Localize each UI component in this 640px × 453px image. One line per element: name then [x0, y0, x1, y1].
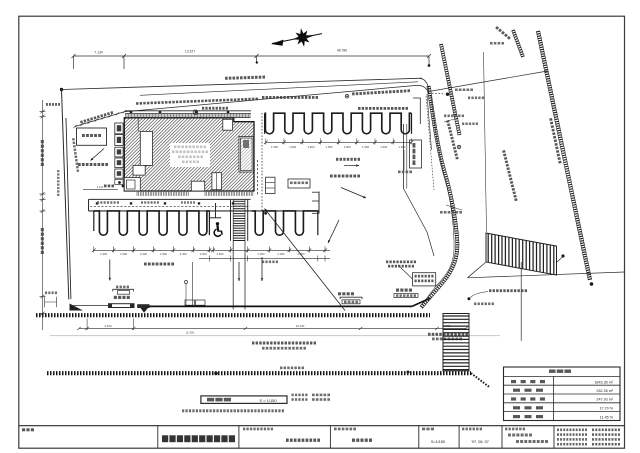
svg-text:22.130: 22.130	[296, 324, 305, 328]
svg-text:2.300: 2.300	[140, 252, 147, 256]
svg-text:7.134: 7.134	[94, 51, 103, 55]
svg-text:1.900: 1.900	[362, 145, 369, 149]
svg-text:1.900: 1.900	[326, 145, 333, 149]
svg-text:46.780: 46.780	[337, 49, 347, 53]
svg-text:247.93 m²: 247.93 m²	[596, 398, 613, 402]
svg-text:2.300: 2.300	[120, 252, 127, 256]
svg-text:1.900: 1.900	[344, 145, 351, 149]
svg-text:1.110: 1.110	[97, 185, 104, 189]
svg-text:11.45 %: 11.45 %	[600, 415, 614, 419]
svg-text:262.26 m²: 262.26 m²	[596, 389, 613, 393]
svg-text:1.900: 1.900	[380, 145, 387, 149]
svg-text:2.300: 2.300	[100, 252, 107, 256]
svg-text:1.900: 1.900	[289, 145, 296, 149]
svg-text:3.500: 3.500	[217, 252, 224, 256]
svg-text:1843.36 m²: 1843.36 m²	[594, 380, 613, 384]
svg-text:2.300: 2.300	[258, 252, 265, 256]
svg-text:17.70 %: 17.70 %	[599, 407, 613, 411]
svg-text:1.900: 1.900	[398, 145, 405, 149]
svg-text:4.100: 4.100	[105, 324, 112, 328]
svg-text:2.300: 2.300	[278, 252, 285, 256]
svg-text:13.227: 13.227	[185, 50, 195, 54]
svg-text:2.300: 2.300	[160, 252, 167, 256]
svg-text:11.250: 11.250	[186, 330, 195, 334]
svg-text:1.900: 1.900	[307, 145, 314, 149]
svg-text:1.900: 1.900	[271, 145, 278, 149]
svg-text:2.300: 2.300	[200, 252, 207, 256]
svg-text:2.300: 2.300	[180, 252, 187, 256]
svg-text:'97. 06. 07: '97. 06. 07	[471, 440, 489, 444]
svg-text:S=1/150: S=1/150	[431, 440, 445, 444]
svg-text:S = 1/150: S = 1/150	[259, 398, 277, 403]
